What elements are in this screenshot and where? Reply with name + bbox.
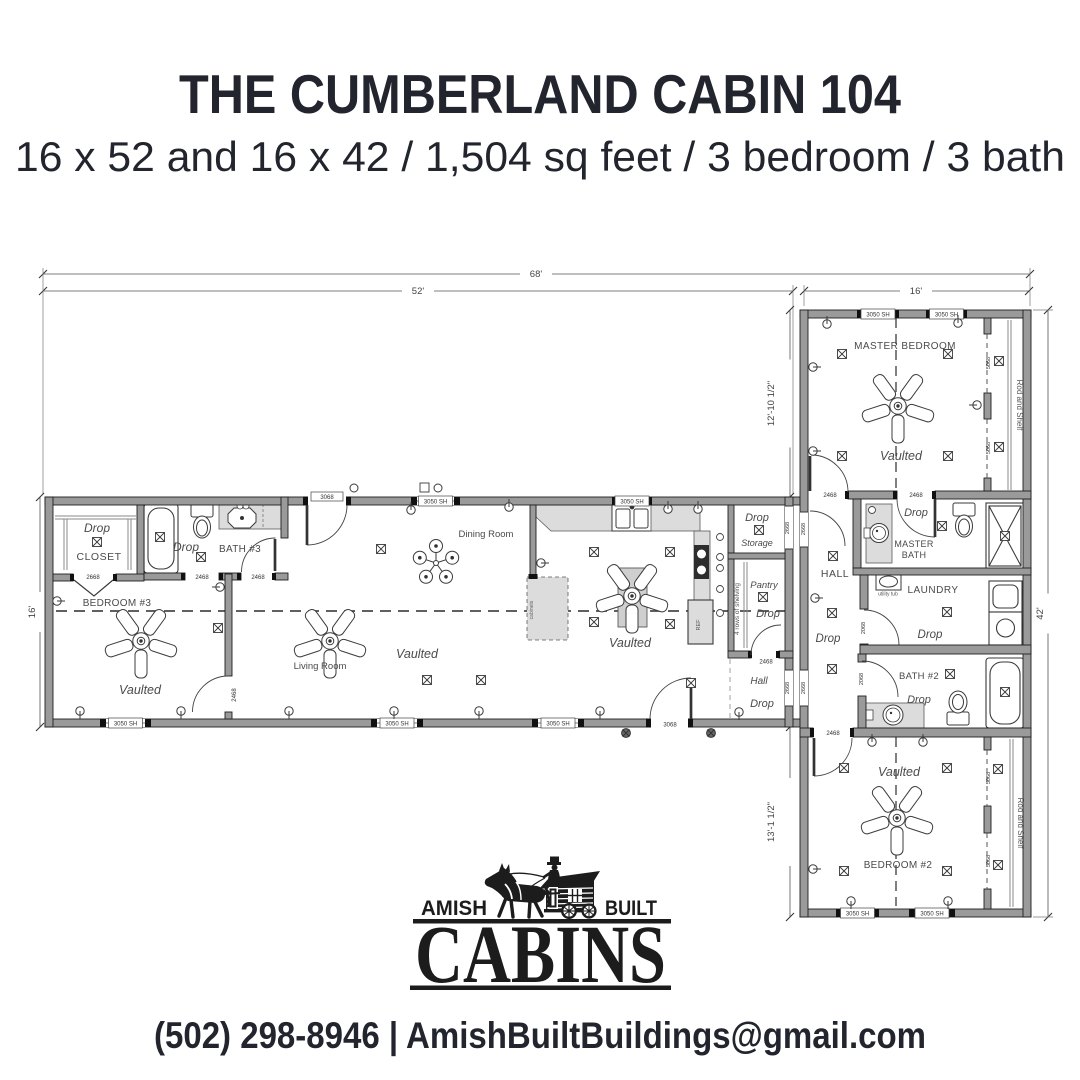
svg-text:Drop: Drop xyxy=(173,540,199,554)
svg-text:5068: 5068 xyxy=(986,772,992,784)
svg-text:3050 SH: 3050 SH xyxy=(424,500,447,506)
svg-text:2068: 2068 xyxy=(859,673,865,685)
svg-text:Rod and Shelf: Rod and Shelf xyxy=(1015,380,1024,431)
svg-text:2468: 2468 xyxy=(195,575,209,581)
svg-text:2068: 2068 xyxy=(861,622,867,634)
svg-text:BEDROOM #2: BEDROOM #2 xyxy=(864,860,933,871)
svg-text:2668: 2668 xyxy=(801,682,807,694)
svg-text:cabinets: cabinets xyxy=(529,600,535,619)
svg-text:3068: 3068 xyxy=(320,495,334,501)
svg-text:2668: 2668 xyxy=(785,682,791,694)
svg-text:5068: 5068 xyxy=(986,442,992,454)
svg-text:2468: 2468 xyxy=(759,660,773,666)
svg-text:16 x 52 and 16 x 42 / 1,504 sq: 16 x 52 and 16 x 42 / 1,504 sq feet / 3 … xyxy=(15,133,1065,180)
svg-text:Storage: Storage xyxy=(741,538,773,548)
svg-text:Drop: Drop xyxy=(750,698,774,710)
svg-text:BEDROOM #3: BEDROOM #3 xyxy=(83,598,152,609)
svg-text:BATH #3: BATH #3 xyxy=(219,544,261,555)
svg-text:MASTER BEDROOM: MASTER BEDROOM xyxy=(854,341,956,352)
svg-text:Hall: Hall xyxy=(750,676,768,687)
svg-text:Dining Room: Dining Room xyxy=(459,529,514,540)
svg-text:5068: 5068 xyxy=(986,357,992,369)
svg-text:2468: 2468 xyxy=(251,575,265,581)
svg-text:42': 42' xyxy=(1035,607,1046,620)
svg-text:BATH #2: BATH #2 xyxy=(899,671,939,682)
svg-text:2468: 2468 xyxy=(909,493,923,499)
svg-text:Drop: Drop xyxy=(907,694,931,706)
svg-text:4 rows of shelving: 4 rows of shelving xyxy=(734,583,741,635)
svg-text:2468: 2468 xyxy=(232,688,238,702)
svg-text:Drop: Drop xyxy=(816,633,842,645)
svg-text:Vaulted: Vaulted xyxy=(396,647,439,661)
svg-text:CLOSET: CLOSET xyxy=(76,551,121,563)
svg-text:3050 SH: 3050 SH xyxy=(620,500,643,506)
svg-text:2468: 2468 xyxy=(826,731,840,737)
svg-text:3050 SH: 3050 SH xyxy=(846,912,869,918)
svg-text:Drop: Drop xyxy=(745,512,769,524)
svg-text:3050 SH: 3050 SH xyxy=(546,722,569,728)
svg-text:68': 68' xyxy=(530,269,543,280)
svg-text:5068: 5068 xyxy=(986,855,992,867)
svg-text:MASTER: MASTER xyxy=(894,539,934,549)
svg-text:Vaulted: Vaulted xyxy=(119,683,162,697)
svg-text:3050 SH: 3050 SH xyxy=(866,313,889,319)
svg-text:Vaulted: Vaulted xyxy=(880,449,923,463)
svg-text:3050 SH: 3050 SH xyxy=(385,722,408,728)
svg-text:52': 52' xyxy=(412,286,425,297)
svg-text:2668: 2668 xyxy=(801,523,807,535)
svg-text:(502) 298-8946 | AmishBuiltBui: (502) 298-8946 | AmishBuiltBuildings@gma… xyxy=(154,1015,926,1057)
svg-text:3050 SH: 3050 SH xyxy=(935,313,958,319)
svg-text:2668: 2668 xyxy=(785,522,791,534)
svg-text:Drop: Drop xyxy=(918,629,944,641)
svg-text:3068: 3068 xyxy=(663,723,677,729)
svg-text:Vaulted: Vaulted xyxy=(609,636,652,650)
svg-text:utility tub: utility tub xyxy=(878,592,898,598)
svg-text:Pantry: Pantry xyxy=(750,580,779,591)
svg-text:Drop: Drop xyxy=(904,507,928,519)
svg-text:THE CUMBERLAND CABIN 104: THE CUMBERLAND CABIN 104 xyxy=(179,63,901,125)
svg-text:LAUNDRY: LAUNDRY xyxy=(907,585,958,596)
svg-text:2468: 2468 xyxy=(823,493,837,499)
svg-text:Drop: Drop xyxy=(84,521,110,535)
svg-text:3050 SH: 3050 SH xyxy=(114,722,137,728)
svg-text:16': 16' xyxy=(910,286,923,297)
svg-text:HALL: HALL xyxy=(821,568,849,580)
svg-text:16': 16' xyxy=(27,606,38,619)
svg-text:BATH: BATH xyxy=(902,550,927,560)
svg-text:Vaulted: Vaulted xyxy=(878,765,921,779)
svg-text:Living Room: Living Room xyxy=(294,661,347,672)
svg-text:Drop: Drop xyxy=(756,608,780,620)
svg-text:12'-10 1/2": 12'-10 1/2" xyxy=(766,381,777,426)
svg-text:REF: REF xyxy=(696,619,702,631)
svg-text:Rod and Shelf: Rod and Shelf xyxy=(1016,798,1025,849)
svg-text:13'-1 1/2": 13'-1 1/2" xyxy=(766,802,777,842)
svg-text:2668: 2668 xyxy=(86,575,100,581)
svg-text:3050 SH: 3050 SH xyxy=(920,912,943,918)
